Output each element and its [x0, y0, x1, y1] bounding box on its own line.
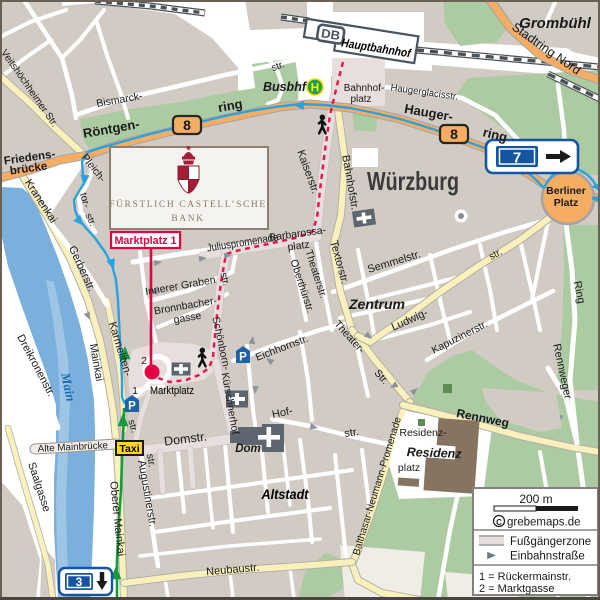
svg-text:1 = Rückermainstr.: 1 = Rückermainstr.	[479, 571, 571, 583]
svg-text:8: 8	[183, 117, 191, 133]
svg-text:H: H	[311, 81, 320, 95]
svg-text:Marktplatz 1: Marktplatz 1	[115, 235, 177, 247]
svg-text:7: 7	[513, 150, 521, 167]
svg-text:Residenz-: Residenz-	[399, 427, 447, 439]
svg-text:Residenz: Residenz	[406, 445, 462, 461]
svg-text:Bahnhof-: Bahnhof-	[344, 83, 385, 94]
svg-text:Busbhf: Busbhf	[263, 80, 308, 94]
svg-text:Dom: Dom	[235, 443, 261, 455]
svg-text:DB: DB	[320, 26, 341, 43]
svg-text:str.: str.	[144, 453, 157, 468]
svg-text:P: P	[239, 352, 247, 364]
svg-text:C: C	[496, 518, 502, 527]
svg-text:Marktplatz: Marktplatz	[150, 385, 194, 397]
svg-text:Zentrum: Zentrum	[348, 296, 405, 312]
svg-text:Würzburg: Würzburg	[367, 166, 459, 196]
svg-text:3: 3	[76, 575, 83, 589]
svg-text:str.: str.	[343, 426, 359, 440]
svg-text:Platz: Platz	[554, 197, 579, 209]
svg-text:platz: platz	[350, 94, 371, 105]
svg-text:2: 2	[141, 355, 147, 367]
svg-text:Berliner: Berliner	[546, 185, 586, 197]
svg-text:FÜRSTLICH CASTELL’SCHE: FÜRSTLICH CASTELL’SCHE	[109, 198, 267, 210]
svg-text:P: P	[128, 401, 136, 413]
svg-text:Taxi: Taxi	[119, 443, 139, 455]
svg-text:Altstadt: Altstadt	[261, 486, 310, 502]
svg-text:1: 1	[132, 385, 138, 397]
svg-text:2 = Marktgasse: 2 = Marktgasse	[479, 583, 555, 595]
svg-text:8: 8	[450, 126, 458, 142]
svg-text:BANK: BANK	[171, 214, 204, 224]
svg-text:Fußgängerzone: Fußgängerzone	[510, 536, 591, 548]
svg-text:platz: platz	[398, 462, 420, 474]
svg-text:Einbahnstraße: Einbahnstraße	[510, 551, 585, 563]
svg-text:grebemaps.de: grebemaps.de	[507, 517, 581, 529]
svg-text:200 m: 200 m	[519, 492, 552, 506]
